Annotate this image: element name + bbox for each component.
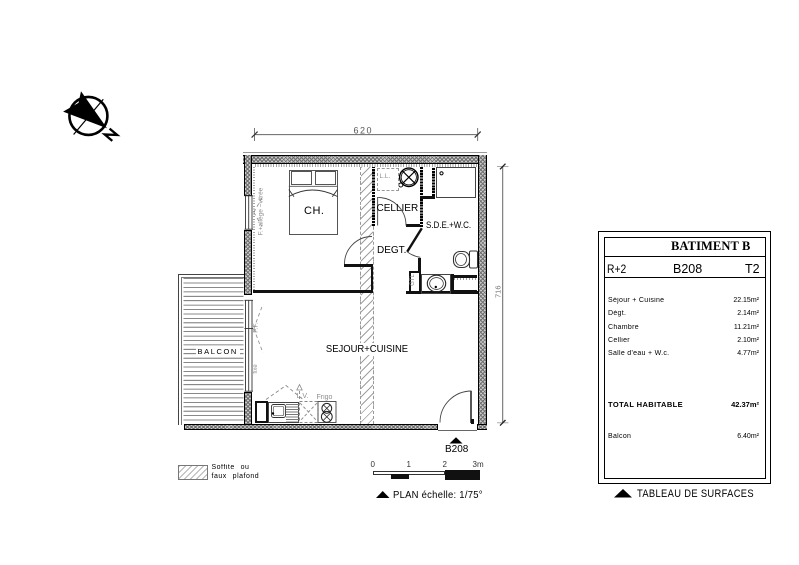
- svg-text:620: 620: [354, 126, 374, 136]
- svg-text:716: 716: [494, 285, 503, 298]
